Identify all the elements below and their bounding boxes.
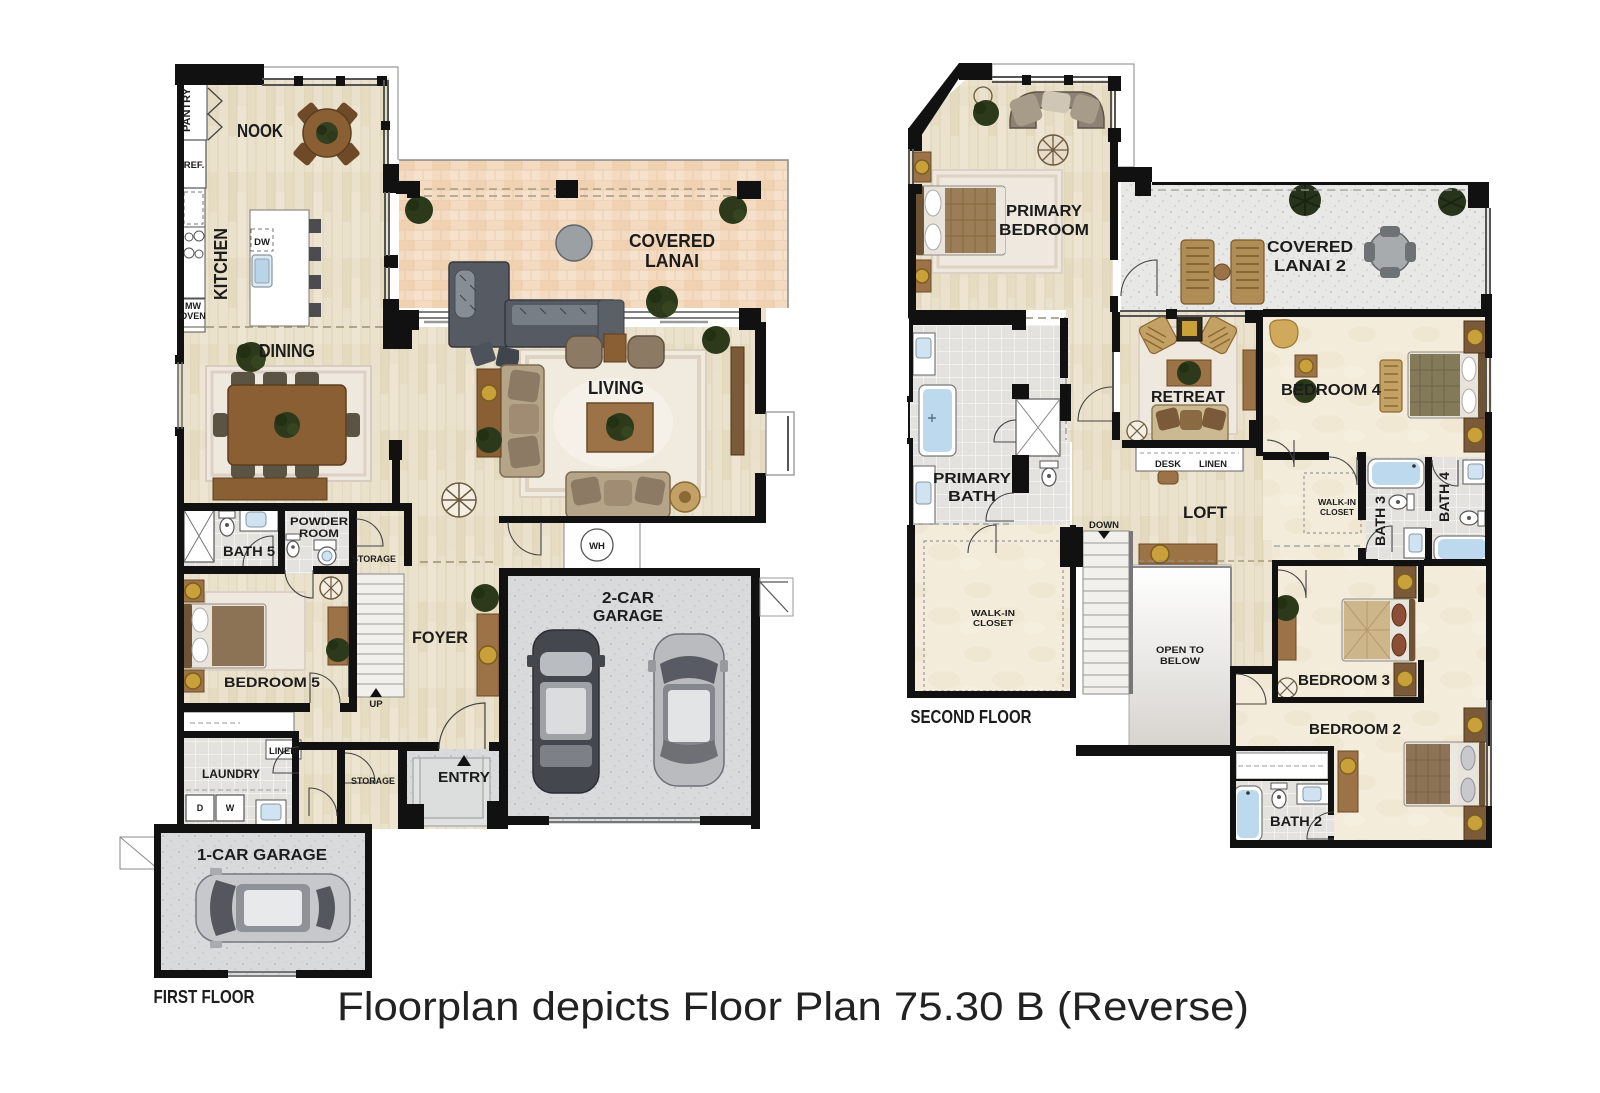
svg-text:OPEN TO: OPEN TO xyxy=(1156,645,1204,656)
svg-text:PANTRY: PANTRY xyxy=(181,88,193,132)
svg-text:Floorplan depicts Floor Plan 7: Floorplan depicts Floor Plan 75.30 B (Re… xyxy=(337,985,1249,1029)
svg-text:CLOSET: CLOSET xyxy=(973,618,1014,628)
svg-text:DESK: DESK xyxy=(1155,459,1182,469)
svg-text:DINING: DINING xyxy=(259,341,315,361)
svg-text:LINEN: LINEN xyxy=(269,746,297,756)
svg-text:BEDROOM 3: BEDROOM 3 xyxy=(1298,672,1390,689)
svg-text:WALK-IN: WALK-IN xyxy=(971,608,1015,618)
svg-text:COVERED: COVERED xyxy=(629,231,715,251)
svg-text:BEDROOM 4: BEDROOM 4 xyxy=(1281,382,1381,399)
svg-text:BEDROOM 2: BEDROOM 2 xyxy=(1309,721,1401,738)
svg-text:DOWN: DOWN xyxy=(1089,520,1119,531)
svg-text:COVERED: COVERED xyxy=(1267,239,1353,256)
svg-text:BATH: BATH xyxy=(948,488,996,505)
svg-text:D: D xyxy=(197,803,204,813)
svg-text:BEDROOM: BEDROOM xyxy=(999,222,1089,239)
svg-text:BATH 2: BATH 2 xyxy=(1270,813,1322,829)
svg-text:LINEN: LINEN xyxy=(1199,459,1227,469)
svg-text:BELOW: BELOW xyxy=(1160,656,1200,667)
svg-text:ROOM: ROOM xyxy=(299,528,339,540)
svg-text:BATH 5: BATH 5 xyxy=(223,543,275,559)
svg-text:WALK-IN: WALK-IN xyxy=(1318,497,1356,507)
svg-text:LANAI 2: LANAI 2 xyxy=(1274,258,1346,275)
svg-text:SECOND FLOOR: SECOND FLOOR xyxy=(911,707,1032,727)
svg-text:UP: UP xyxy=(369,699,383,710)
svg-text:PRIMARY: PRIMARY xyxy=(1006,203,1082,220)
svg-text:KITCHEN: KITCHEN xyxy=(211,228,231,300)
svg-text:BATH 4: BATH 4 xyxy=(1436,472,1452,522)
svg-text:REF.: REF. xyxy=(184,160,205,171)
svg-text:RETREAT: RETREAT xyxy=(1151,389,1225,406)
svg-text:OVEN: OVEN xyxy=(180,311,206,321)
svg-text:MW: MW xyxy=(185,301,201,311)
svg-text:W: W xyxy=(226,803,235,813)
svg-text:DW: DW xyxy=(254,237,270,248)
svg-text:LOFT: LOFT xyxy=(1183,503,1228,522)
svg-text:WH: WH xyxy=(589,541,605,552)
svg-text:STORAGE: STORAGE xyxy=(352,554,396,565)
svg-text:LAUNDRY: LAUNDRY xyxy=(202,767,260,781)
svg-text:ENTRY: ENTRY xyxy=(438,769,490,786)
svg-text:POWDER: POWDER xyxy=(290,516,348,528)
svg-text:GARAGE: GARAGE xyxy=(593,608,663,625)
svg-text:LANAI: LANAI xyxy=(645,251,699,271)
svg-text:STORAGE: STORAGE xyxy=(351,776,395,787)
svg-text:1-CAR GARAGE: 1-CAR GARAGE xyxy=(197,847,327,864)
svg-text:NOOK: NOOK xyxy=(237,121,283,141)
svg-text:PRIMARY: PRIMARY xyxy=(933,470,1011,487)
svg-text:FIRST FLOOR: FIRST FLOOR xyxy=(154,987,255,1007)
svg-text:BATH 3: BATH 3 xyxy=(1372,496,1388,546)
svg-text:FOYER: FOYER xyxy=(412,628,468,647)
svg-text:BEDROOM 5: BEDROOM 5 xyxy=(224,674,320,690)
svg-text:2-CAR: 2-CAR xyxy=(602,590,654,607)
svg-text:LIVING: LIVING xyxy=(588,378,644,398)
svg-text:CLOSET: CLOSET xyxy=(1320,507,1355,517)
